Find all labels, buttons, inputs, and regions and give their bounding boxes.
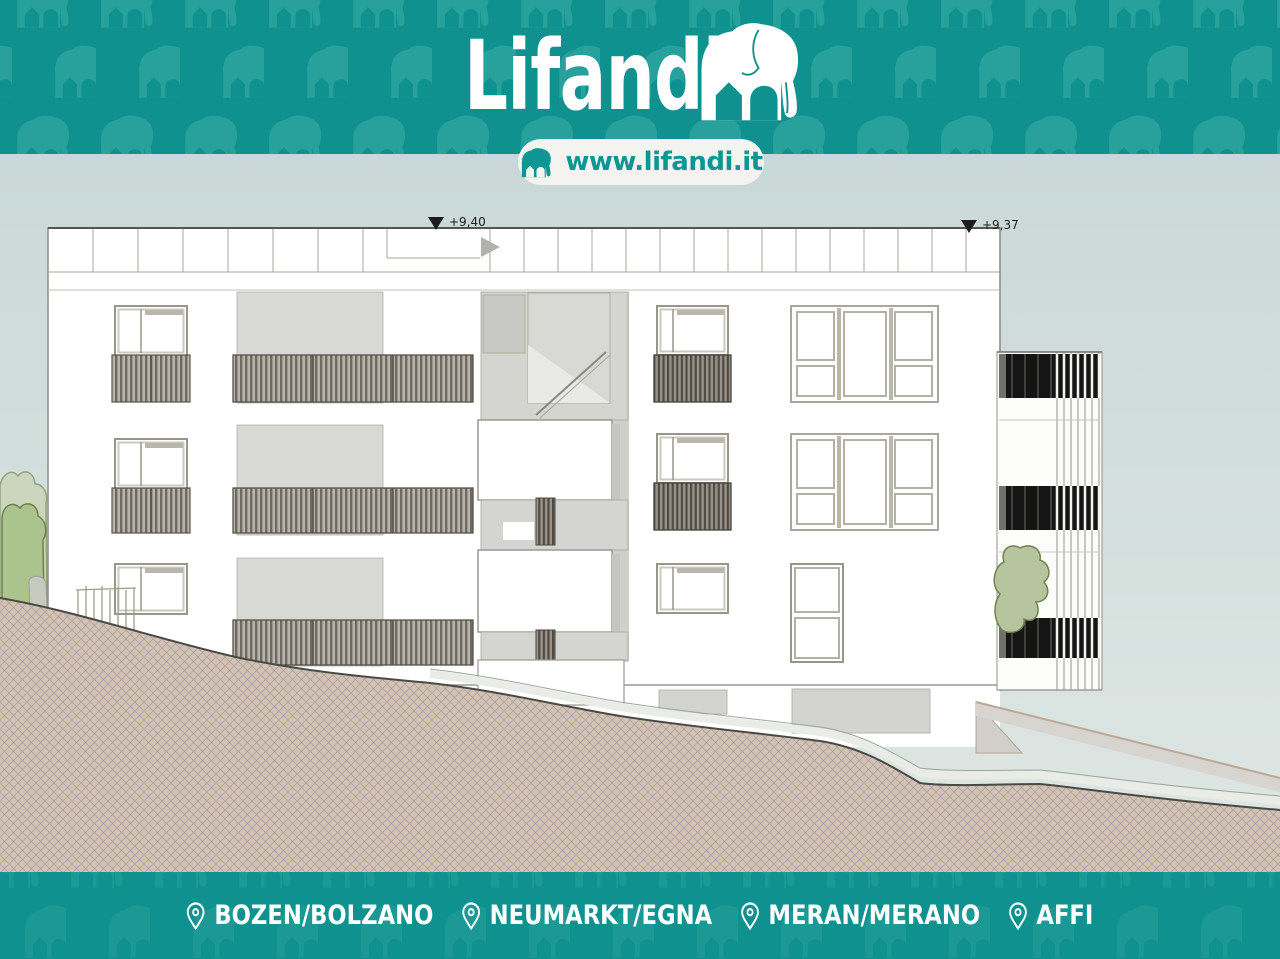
locations-row: BOZEN/BOLZANO NEUMARKT/EGNA MERAN/MERANO — [102, 872, 1177, 959]
map-pin-icon — [462, 902, 480, 930]
location-item-affi: AFFI — [1009, 900, 1094, 931]
left-bushes — [0, 472, 47, 608]
side-balcony-structure — [997, 352, 1102, 690]
location-item-meran: MERAN/MERANO — [741, 900, 980, 931]
location-label: NEUMARKT/EGNA — [490, 900, 712, 931]
map-pin-icon — [741, 902, 759, 930]
footer-band: BOZEN/BOLZANO NEUMARKT/EGNA MERAN/MERANO — [0, 872, 1280, 959]
map-pin-icon — [187, 902, 205, 930]
left-windows — [112, 306, 190, 614]
stair-tower — [478, 292, 629, 705]
header-band: Lifandi www.lifandi.it — [0, 0, 1280, 154]
location-item-neumarkt: NEUMARKT/EGNA — [462, 900, 712, 931]
elephant-logo-icon — [692, 20, 812, 122]
elevation-mark-label: +9,37 — [982, 218, 1019, 232]
elephant-pill-icon — [519, 147, 555, 178]
elevation-marker-right: +9,37 — [961, 218, 1019, 233]
elevation-marker-left: +9,40 — [428, 215, 486, 230]
map-pin-icon — [1009, 902, 1027, 930]
location-label: AFFI — [1036, 900, 1093, 931]
balcony-recesses — [237, 292, 383, 666]
poster-canvas: Lifandi www.lifandi.it — [0, 0, 1280, 959]
brand-wordmark: Lifandi — [464, 28, 726, 124]
roof-terrace-notch — [387, 229, 480, 258]
tall-window — [791, 564, 843, 662]
website-url: www.lifandi.it — [565, 147, 762, 177]
location-label: MERAN/MERANO — [768, 900, 980, 931]
website-pill[interactable]: www.lifandi.it — [518, 139, 764, 185]
location-item-bozen: BOZEN/BOLZANO — [187, 900, 434, 931]
elevation-drawing: +9,40 +9,37 — [0, 154, 1280, 872]
location-label: BOZEN/BOLZANO — [214, 900, 433, 931]
elevation-mark-label: +9,40 — [449, 215, 486, 229]
